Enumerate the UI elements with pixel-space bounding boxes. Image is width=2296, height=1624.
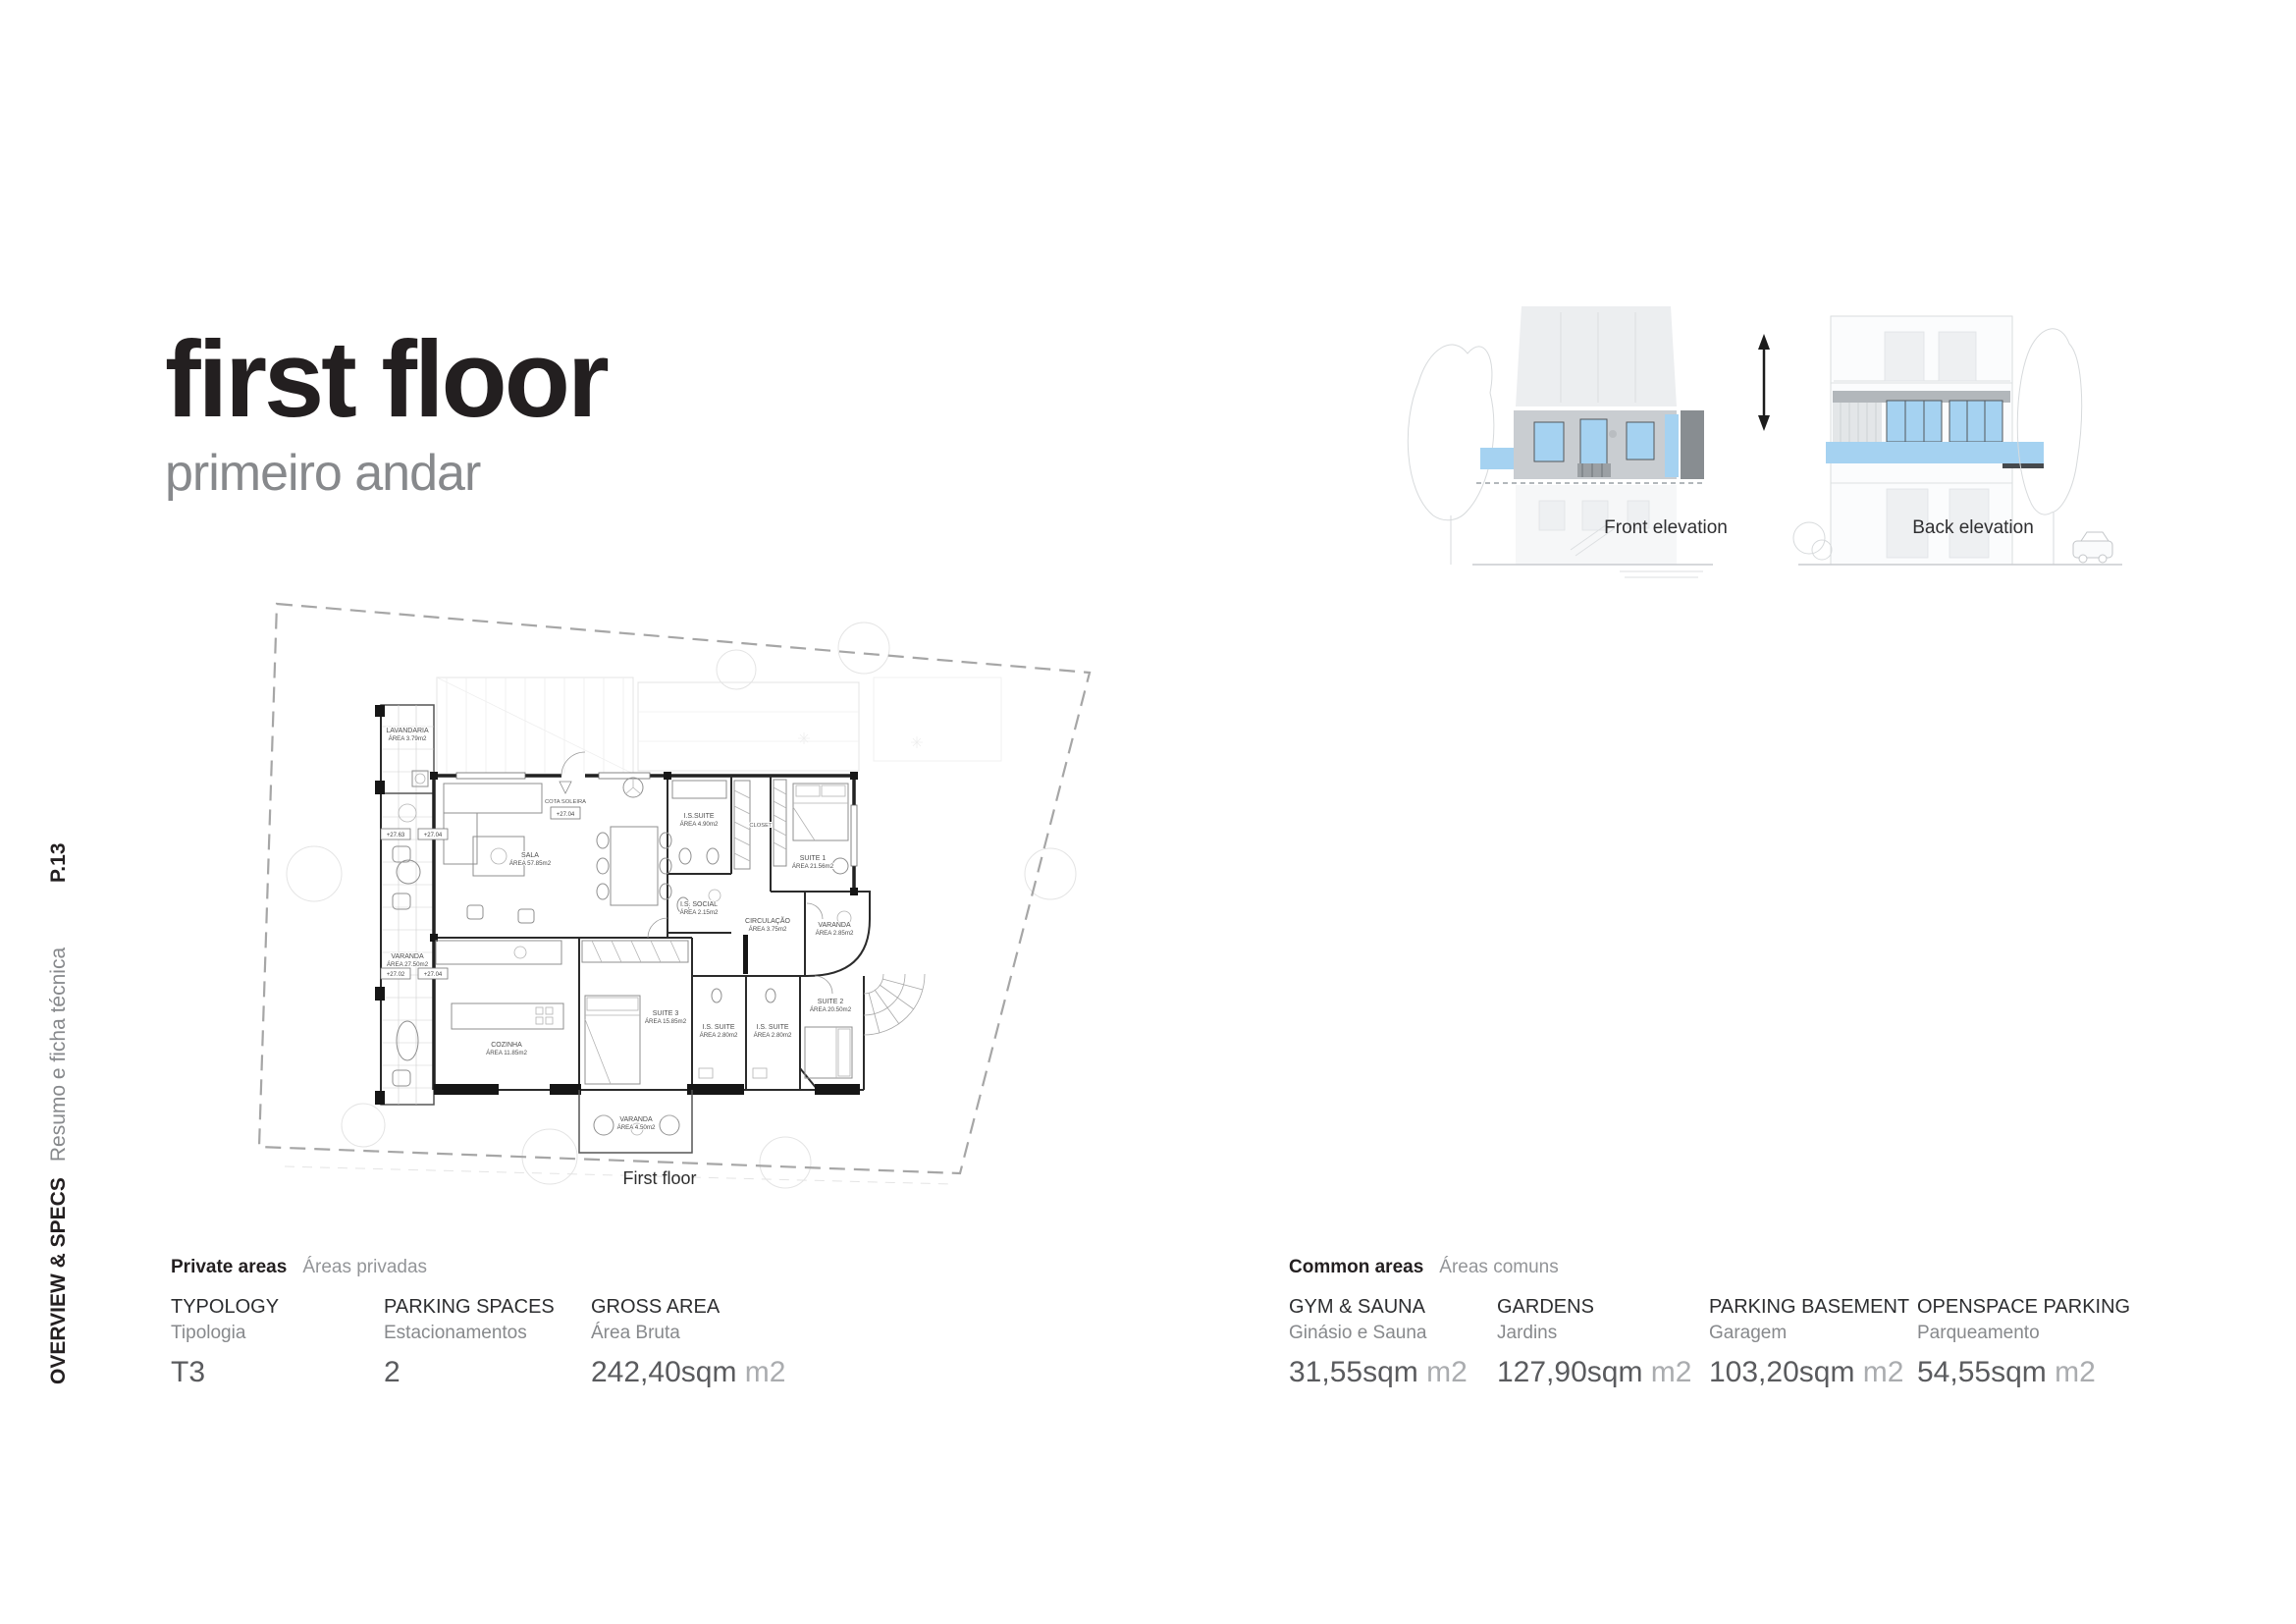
exterior-stair — [864, 974, 925, 1035]
room-label-is-social: I.S. SOCIALÁREA 2.15m2 — [680, 901, 719, 916]
spec-parking-spaces: PARKING SPACES Estacionamentos 2 — [384, 1296, 591, 1389]
spec-value: 103,20sqm m2 — [1709, 1356, 1917, 1389]
room-label-circulacao: CIRCULAÇÃOÁREA 3.75m2 — [745, 916, 790, 933]
spec-sublabel: Jardins — [1497, 1323, 1709, 1344]
common-areas-section: Common areasÁreas comuns GYM & SAUNA Gin… — [1289, 1257, 2130, 1389]
spec-sublabel: Parqueamento — [1917, 1323, 2130, 1344]
spec-sublabel: Tipologia — [171, 1323, 384, 1344]
spec-value: 54,55sqm m2 — [1917, 1356, 2130, 1389]
spec-label: PARKING SPACES — [384, 1296, 591, 1319]
room-label-suite2: SUITE 2ÁREA 20.50m2 — [810, 999, 852, 1013]
room-label-lavandaria: LAVANDARIAÁREA 3.79m2 — [386, 728, 429, 742]
spec-gross-area: GROSS AREA Área Bruta 242,40sqm m2 — [591, 1296, 785, 1389]
room-label-suite3: SUITE 3ÁREA 15.85m2 — [645, 1010, 687, 1025]
cota-soleira-label: COTA SOLEIRA — [545, 799, 586, 805]
spec-label: TYPOLOGY — [171, 1296, 384, 1319]
spec-value: 242,40sqm m2 — [591, 1356, 785, 1389]
spec-value: 127,90sqm m2 — [1497, 1356, 1709, 1389]
page-title: first floor — [165, 326, 607, 434]
cota-soleira-value: +27.04 — [557, 812, 575, 818]
spec-sublabel: Ginásio e Sauna — [1289, 1323, 1497, 1344]
spec-parking-basement: PARKING BASEMENT Garagem 103,20sqm m2 — [1709, 1296, 1917, 1389]
room-label-varanda-right: VARANDAÁREA 2.85m2 — [816, 922, 854, 937]
spec-sublabel: Garagem — [1709, 1323, 1917, 1344]
room-label-varanda-bottom: VARANDAÁREA 4.50m2 — [617, 1116, 656, 1131]
room-label-closet: CLOSET — [749, 823, 773, 829]
room-label-suite1: SUITE 1ÁREA 21.56m2 — [792, 855, 834, 870]
level-marker-3: +27.02 — [387, 972, 405, 978]
common-areas-title: Common areas — [1289, 1257, 1423, 1277]
spec-openspace-parking: OPENSPACE PARKING Parqueamento 54,55sqm … — [1917, 1296, 2130, 1389]
spec-value: 31,55sqm m2 — [1289, 1356, 1497, 1389]
spec-typology: TYPOLOGY Tipologia T3 — [171, 1296, 384, 1389]
sidebar-section-label: OVERVIEW & SPECSResumo e ficha técnica — [47, 947, 71, 1384]
furniture — [436, 778, 852, 1135]
room-label-cozinha: COZINHAÁREA 11.85m2 — [486, 1042, 527, 1056]
floor-plan-caption: First floor — [561, 1168, 758, 1189]
spec-gym-sauna: GYM & SAUNA Ginásio e Sauna 31,55sqm m2 — [1289, 1296, 1497, 1389]
brochure-page: first floor primeiro andar OVERVIEW & SP… — [0, 0, 2296, 1624]
front-elevation-label: Front elevation — [1548, 517, 1784, 539]
common-areas-columns: GYM & SAUNA Ginásio e Sauna 31,55sqm m2 … — [1289, 1296, 2130, 1389]
room-label-varanda-left: VARANDAÁREA 27.50m2 — [387, 953, 429, 968]
room-label-sala: SALAÁREA 57.85m2 — [509, 852, 552, 867]
section-sublabel: Resumo e ficha técnica — [47, 947, 70, 1162]
spec-value: T3 — [171, 1356, 384, 1389]
level-marker-1: +27.63 — [387, 833, 405, 839]
spec-sublabel: Área Bruta — [591, 1323, 785, 1344]
page-subtitle: primeiro andar — [165, 444, 607, 503]
section-label: OVERVIEW & SPECS — [47, 1177, 70, 1384]
room-labels: LAVANDARIAÁREA 3.79m2 SALAÁREA 57.85m2 V… — [386, 728, 854, 1131]
room-label-is-suite-left: I.S. SUITEÁREA 2.80m2 — [700, 1024, 738, 1039]
private-areas-title: Private areas — [171, 1257, 287, 1277]
private-areas-section: Private areasÁreas privadas TYPOLOGY Tip… — [171, 1257, 785, 1389]
private-areas-subtitle: Áreas privadas — [302, 1257, 427, 1277]
spec-value: 2 — [384, 1356, 591, 1389]
spec-sublabel: Estacionamentos — [384, 1323, 591, 1344]
spec-label: OPENSPACE PARKING — [1917, 1296, 2130, 1319]
common-areas-subtitle: Áreas comuns — [1439, 1257, 1558, 1277]
spec-label: GARDENS — [1497, 1296, 1709, 1319]
private-areas-columns: TYPOLOGY Tipologia T3 PARKING SPACES Est… — [171, 1296, 785, 1389]
balcony-strip — [375, 705, 434, 1105]
height-arrow-icon — [1758, 334, 1770, 431]
level-marker-4: +27.04 — [424, 972, 443, 978]
level-markers: +27.63 +27.04 +27.02 +27.04 COTA SOLEIRA… — [381, 782, 586, 979]
room-label-is-suite-top: I.S.SUITEÁREA 4.90m2 — [680, 813, 719, 828]
spec-gardens: GARDENS Jardins 127,90sqm m2 — [1497, 1296, 1709, 1389]
spec-label: GYM & SAUNA — [1289, 1296, 1497, 1319]
page-number: P.13 — [47, 843, 71, 884]
room-label-is-suite-right: I.S. SUITEÁREA 2.80m2 — [754, 1024, 792, 1039]
level-marker-2: +27.04 — [424, 833, 443, 839]
back-elevation-label: Back elevation — [1855, 517, 2091, 539]
floor-plan-drawing: +27.63 +27.04 +27.02 +27.04 COTA SOLEIRA… — [226, 579, 1148, 1208]
title-block: first floor primeiro andar — [165, 326, 607, 503]
private-areas-heading: Private areasÁreas privadas — [171, 1257, 785, 1278]
common-areas-heading: Common areasÁreas comuns — [1289, 1257, 2130, 1278]
spec-label: GROSS AREA — [591, 1296, 785, 1319]
spec-label: PARKING BASEMENT — [1709, 1296, 1917, 1319]
